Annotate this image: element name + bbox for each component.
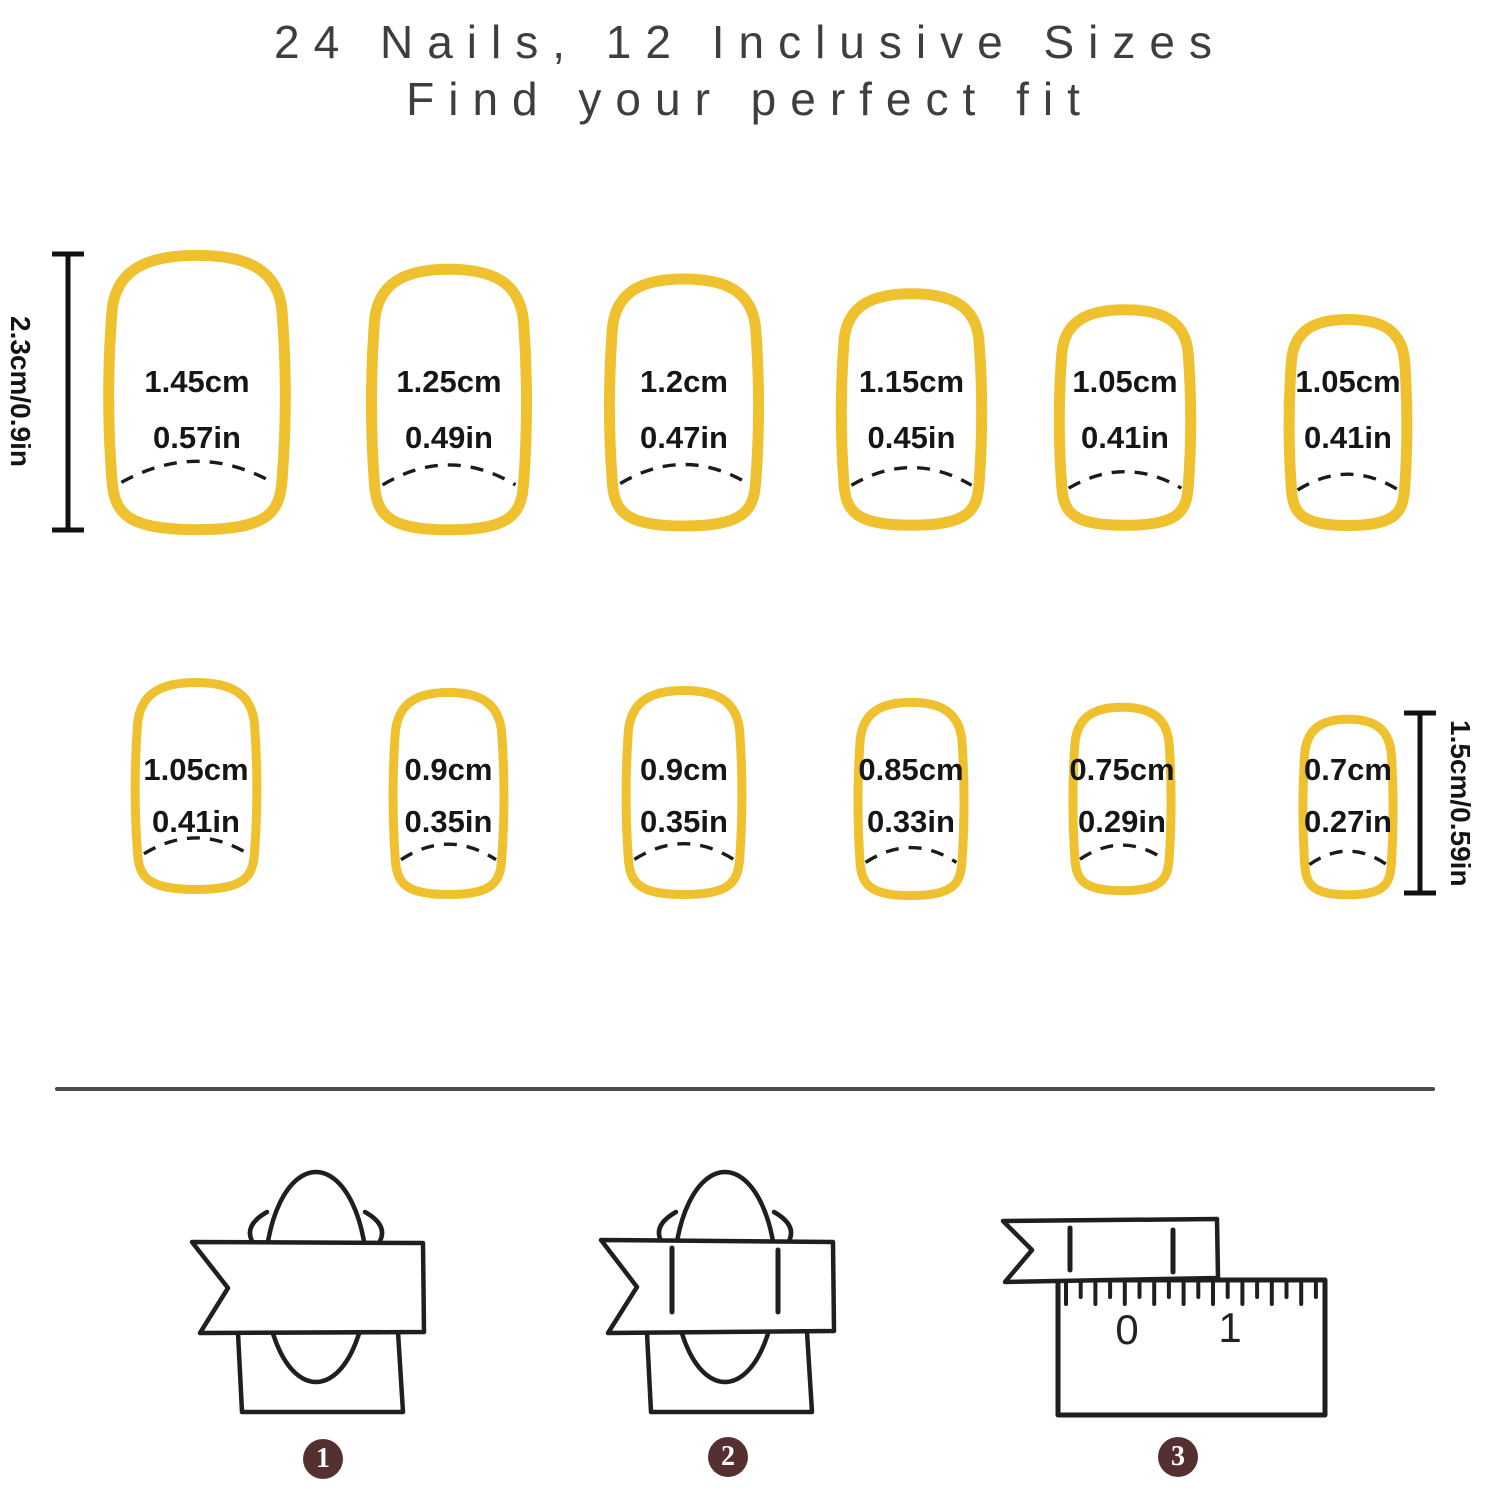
nail-size-cm: 1.25cm [396,366,501,397]
nail-shape [858,702,964,895]
nail-shape [609,279,758,526]
nail-size-cm: 1.2cm [640,366,728,397]
measuring-tape [192,1242,424,1333]
title-line-2: Find your perfect fit [0,71,1500,128]
nail-outline-row1-4 [830,281,993,538]
smile-line [866,848,957,863]
finger-side-right [774,1212,791,1241]
step-badge-1: 1 [303,1439,343,1479]
smile-line [401,844,496,860]
nail-size-cm: 1.05cm [1295,366,1400,397]
smile-line [851,468,971,486]
nail-size-inch: 0.27in [1304,806,1392,837]
section-divider [55,1087,1435,1091]
ruler [1058,1280,1325,1415]
nail-shape [1059,310,1190,526]
nail-size-inch: 0.41in [152,806,240,837]
finger-body [238,1332,403,1412]
step-badge-3: 3 [1158,1437,1198,1477]
diagram-step3-tape-on-ruler: 0 1 [1003,1219,1325,1415]
nail-shape [393,693,504,895]
nail-outline-row2-3 [615,678,753,907]
smile-line [383,465,516,485]
nail-size-cm: 1.05cm [143,754,248,785]
step-badge-2: 2 [708,1437,748,1477]
ruler-number-zero: 0 [1115,1306,1138,1353]
step-number: 1 [316,1443,330,1475]
finger-side-left [250,1212,267,1241]
product-infographic: 24 Nails, 12 Inclusive Sizes Find your p… [0,0,1500,1500]
step-number: 2 [721,1441,735,1473]
nail-size-cm: 0.9cm [640,754,728,785]
finger-side-left [659,1212,676,1241]
nail-size-inch: 0.49in [405,422,493,453]
nail-size-inch: 0.35in [640,806,728,837]
length-ruler-right [1400,706,1440,900]
length-label-left: 2.3cm/0.9in [0,258,40,524]
measuring-tape [1003,1219,1218,1282]
title-line-1: 24 Nails, 12 Inclusive Sizes [0,14,1500,71]
nail-size-cm: 0.85cm [858,754,963,785]
length-label-right: 1.5cm/0.59in [1438,706,1482,900]
nail-size-inch: 0.35in [405,806,493,837]
diagram-step1-finger-with-tape [192,1172,424,1412]
nail-size-inch: 0.41in [1304,422,1392,453]
ruler-number-one: 1 [1218,1304,1241,1351]
nail-size-cm: 0.75cm [1069,754,1174,785]
nail-size-cm: 0.9cm [405,754,493,785]
smile-line [1309,851,1386,865]
nail-outline-row1-5 [1048,297,1202,538]
smile-line [620,465,748,484]
nail-shape [841,294,981,525]
finger-body [647,1332,812,1412]
measuring-steps-diagram: 0 1 [0,1140,1500,1440]
nail-outline-row1-2 [360,256,538,543]
nail-size-cm: 1.45cm [144,366,249,397]
smile-line [144,838,248,854]
nail-size-inch: 0.29in [1078,806,1166,837]
nail-shape [372,269,527,530]
measuring-tape [601,1240,834,1333]
smile-line [121,461,272,482]
diagram-step2-marked-tape [601,1172,834,1412]
nail-size-inch: 0.45in [868,422,956,453]
nail-outline-row2-2 [382,680,515,907]
nail-size-cm: 1.15cm [859,366,964,397]
smile-line [1069,472,1182,489]
nail-size-inch: 0.33in [867,806,955,837]
title-block: 24 Nails, 12 Inclusive Sizes Find your p… [0,14,1500,128]
nail-shape [1073,707,1171,890]
smile-line [1080,845,1164,859]
nail-size-cm: 0.7cm [1304,754,1392,785]
nail-outline-row2-5 [1062,695,1182,903]
nail-size-inch: 0.47in [640,422,728,453]
finger-side-right [365,1212,382,1241]
nail-size-inch: 0.41in [1081,422,1169,453]
length-ruler-left [48,246,88,538]
nail-shape [626,691,742,895]
nail-size-cm: 1.05cm [1072,366,1177,397]
smile-line [1298,474,1399,490]
smile-line [634,844,733,860]
nail-outline-row1-3 [598,266,770,539]
nail-outline-row2-4 [847,690,975,908]
step-number: 3 [1171,1441,1185,1473]
nail-size-inch: 0.57in [153,422,241,453]
